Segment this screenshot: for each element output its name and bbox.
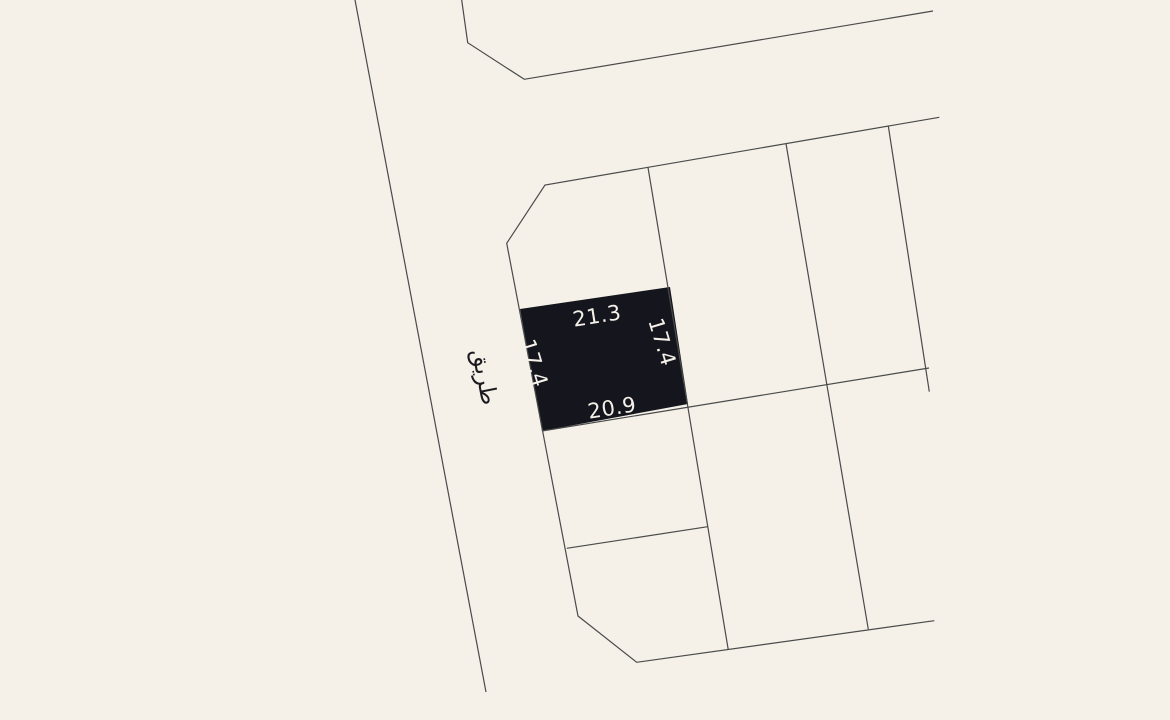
road-west-line xyxy=(355,0,486,692)
plot-map: 21.3 17.4 20.9 17.4 طريق xyxy=(0,0,1170,720)
parcel-divider-3 xyxy=(888,126,929,392)
parcel-divider-5 xyxy=(567,527,708,549)
parcel-map-canvas xyxy=(0,0,1170,720)
north-block-boundary xyxy=(462,0,933,79)
parcel-divider-2 xyxy=(786,144,868,630)
